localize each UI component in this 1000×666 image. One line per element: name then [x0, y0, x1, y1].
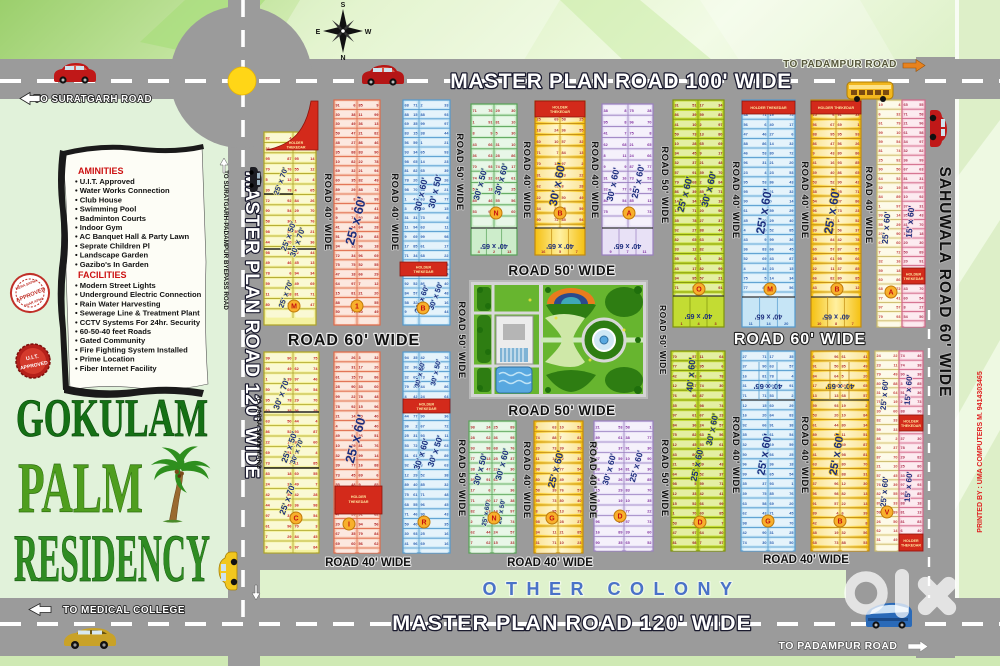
svg-text:32: 32: [579, 140, 583, 144]
svg-text:HOLDER: HOLDER: [903, 419, 919, 423]
svg-text:FACILITIES: FACILITIES: [78, 270, 127, 280]
svg-text:50: 50: [919, 315, 923, 319]
svg-text:96: 96: [743, 463, 747, 467]
svg-text:ROAD 50' WIDE: ROAD 50' WIDE: [508, 263, 615, 278]
svg-text:37: 37: [692, 161, 696, 165]
svg-text:92: 92: [919, 195, 923, 199]
svg-text:68: 68: [622, 143, 626, 147]
svg-text:48: 48: [444, 291, 448, 295]
svg-text:78: 78: [719, 374, 723, 378]
svg-text:10: 10: [626, 499, 630, 503]
svg-text:87: 87: [877, 455, 881, 459]
svg-text:12: 12: [405, 473, 409, 477]
svg-text:80: 80: [718, 132, 722, 136]
svg-text:35: 35: [647, 499, 651, 503]
svg-text:95: 95: [692, 276, 696, 280]
svg-text:89: 89: [405, 483, 409, 487]
svg-text:95: 95: [266, 157, 270, 161]
svg-text:59: 59: [405, 522, 409, 526]
svg-text:89: 89: [444, 454, 448, 458]
svg-text:65: 65: [692, 238, 696, 242]
svg-text:HOLDER: HOLDER: [416, 265, 432, 269]
svg-text:86: 86: [855, 152, 859, 156]
svg-text:71: 71: [904, 112, 908, 116]
svg-text:TO PADAMPUR ROAD: TO PADAMPUR ROAD: [778, 640, 897, 652]
svg-text:59: 59: [879, 140, 883, 144]
svg-text:28: 28: [313, 493, 317, 497]
svg-text:45: 45: [789, 248, 793, 252]
svg-text:17: 17: [770, 355, 774, 359]
svg-text:39: 39: [700, 171, 704, 175]
svg-text:96: 96: [413, 542, 417, 546]
svg-text:• Underground Electric Connect: • Underground Electric Connection: [75, 290, 202, 299]
svg-text:66: 66: [647, 154, 651, 158]
svg-text:87: 87: [313, 430, 317, 434]
svg-text:36: 36: [494, 436, 498, 440]
svg-text:80: 80: [838, 276, 842, 280]
svg-text:89: 89: [813, 512, 817, 516]
svg-text:22: 22: [647, 510, 651, 514]
svg-text:63: 63: [266, 420, 270, 424]
svg-text:77: 77: [471, 457, 475, 461]
svg-text:19: 19: [618, 499, 622, 503]
svg-text:96: 96: [596, 520, 600, 524]
svg-text:31: 31: [351, 366, 355, 370]
svg-text:52: 52: [577, 426, 581, 430]
svg-text:71: 71: [692, 209, 696, 213]
svg-text:20: 20: [789, 502, 793, 506]
svg-text:82: 82: [675, 238, 679, 242]
svg-text:37: 37: [718, 219, 722, 223]
svg-text:53: 53: [863, 541, 867, 545]
svg-text:28: 28: [579, 185, 583, 189]
svg-text:V: V: [885, 510, 890, 517]
svg-text:6: 6: [289, 546, 291, 550]
svg-text:78: 78: [336, 405, 340, 409]
svg-text:80: 80: [336, 366, 340, 370]
svg-text:23: 23: [444, 160, 448, 164]
svg-text:61: 61: [879, 122, 883, 126]
svg-text:75: 75: [604, 210, 608, 214]
svg-text:51: 51: [374, 434, 378, 438]
svg-text:46: 46: [488, 199, 492, 203]
svg-text:63: 63: [444, 444, 448, 448]
svg-text:49: 49: [295, 282, 299, 286]
svg-text:81: 81: [577, 436, 581, 440]
svg-text:97: 97: [692, 531, 696, 535]
svg-text:39: 39: [444, 169, 448, 173]
svg-text:59: 59: [877, 511, 881, 515]
svg-text:ROAD 40' WIDE: ROAD 40' WIDE: [507, 557, 593, 569]
svg-text:75: 75: [630, 109, 634, 113]
svg-text:32: 32: [405, 375, 409, 379]
svg-text:35: 35: [673, 404, 677, 408]
svg-text:9: 9: [536, 426, 538, 430]
svg-text:61: 61: [692, 414, 696, 418]
svg-text:6: 6: [376, 473, 378, 477]
svg-text:55: 55: [413, 503, 417, 507]
svg-text:87: 87: [287, 157, 291, 161]
svg-text:ROAD 40' WIDE: ROAD 40' WIDE: [730, 161, 741, 238]
svg-text:48: 48: [813, 531, 817, 535]
svg-text:50: 50: [896, 168, 900, 172]
svg-text:72: 72: [336, 254, 340, 258]
svg-text:81: 81: [405, 169, 409, 173]
svg-text:16: 16: [743, 374, 747, 378]
svg-text:55: 55: [295, 168, 299, 172]
svg-text:98: 98: [692, 541, 696, 545]
svg-text:25: 25: [879, 158, 883, 162]
svg-text:1: 1: [649, 426, 651, 430]
svg-text:75: 75: [813, 238, 817, 242]
svg-text:29: 29: [901, 455, 905, 459]
svg-text:99: 99: [374, 197, 378, 201]
svg-text:A: A: [888, 290, 893, 297]
svg-text:42: 42: [743, 531, 747, 535]
svg-text:63: 63: [421, 226, 425, 230]
svg-text:7: 7: [721, 521, 723, 525]
svg-text:15: 15: [359, 405, 363, 409]
svg-text:82: 82: [830, 276, 834, 280]
svg-text:16: 16: [622, 176, 626, 180]
svg-text:70: 70: [673, 355, 677, 359]
svg-text:68: 68: [421, 254, 425, 258]
svg-text:85: 85: [855, 276, 859, 280]
svg-text:90: 90: [838, 180, 842, 184]
svg-text:95: 95: [744, 180, 748, 184]
svg-text:88: 88: [405, 113, 409, 117]
svg-text:90: 90: [374, 150, 378, 154]
svg-text:73: 73: [917, 400, 921, 404]
svg-text:56: 56: [838, 228, 842, 232]
svg-text:98: 98: [266, 367, 270, 371]
svg-text:2: 2: [700, 123, 702, 127]
svg-text:65: 65: [700, 142, 704, 146]
svg-text:96: 96: [359, 244, 363, 248]
svg-text:69: 69: [770, 502, 774, 506]
svg-text:61: 61: [719, 443, 723, 447]
svg-text:69: 69: [762, 257, 766, 261]
svg-text:71: 71: [473, 109, 477, 113]
svg-text:31: 31: [536, 541, 540, 545]
svg-text:18: 18: [917, 501, 921, 505]
svg-text:17: 17: [359, 366, 363, 370]
svg-text:39: 39: [626, 531, 630, 535]
svg-text:10: 10: [511, 143, 515, 147]
svg-text:89: 89: [919, 250, 923, 254]
svg-text:19: 19: [893, 400, 897, 404]
svg-text:93: 93: [471, 447, 475, 451]
svg-text:13: 13: [579, 151, 583, 155]
svg-text:21: 21: [336, 415, 340, 419]
svg-text:22: 22: [537, 196, 541, 200]
svg-text:61: 61: [842, 355, 846, 359]
svg-text:61: 61: [413, 493, 417, 497]
svg-text:11: 11: [359, 113, 363, 117]
svg-text:15: 15: [494, 541, 498, 545]
svg-text:18: 18: [789, 463, 793, 467]
svg-text:C: C: [293, 516, 298, 523]
svg-text:36: 36: [789, 238, 793, 242]
svg-text:70: 70: [919, 287, 923, 291]
svg-text:22: 22: [813, 267, 817, 271]
svg-text:99: 99: [421, 122, 425, 126]
svg-text:62: 62: [537, 185, 541, 189]
svg-text:78: 78: [266, 272, 270, 276]
svg-text:80: 80: [842, 423, 846, 427]
svg-text:40: 40: [577, 499, 581, 503]
svg-text:89: 89: [510, 426, 514, 430]
svg-text:40: 40: [374, 424, 378, 428]
svg-text:98: 98: [444, 235, 448, 239]
svg-text:9: 9: [813, 472, 815, 476]
svg-text:39: 39: [813, 171, 817, 175]
svg-text:50: 50: [834, 365, 838, 369]
svg-text:88: 88: [359, 188, 363, 192]
svg-text:69: 69: [336, 169, 340, 173]
svg-text:6: 6: [813, 355, 815, 359]
svg-text:13: 13: [700, 132, 704, 136]
svg-text:ROAD 60' WIDE: ROAD 60' WIDE: [288, 332, 420, 349]
svg-text:43: 43: [770, 257, 774, 261]
svg-text:29: 29: [789, 209, 793, 213]
svg-text:10: 10: [626, 457, 630, 461]
svg-text:45: 45: [295, 261, 299, 265]
svg-text:29: 29: [287, 535, 291, 539]
svg-text:46: 46: [287, 261, 291, 265]
svg-text:59: 59: [266, 282, 270, 286]
svg-text:8: 8: [446, 216, 448, 220]
svg-text:9: 9: [764, 238, 766, 242]
svg-text:38: 38: [917, 363, 921, 367]
svg-text:63: 63: [743, 502, 747, 506]
svg-text:20: 20: [784, 322, 788, 326]
svg-text:45: 45: [351, 473, 355, 477]
svg-text:59: 59: [789, 443, 793, 447]
svg-text:12: 12: [673, 492, 677, 496]
svg-text:16: 16: [743, 414, 747, 418]
svg-text:71: 71: [762, 355, 766, 359]
svg-text:63: 63: [919, 168, 923, 172]
svg-text:42: 42: [700, 492, 704, 496]
svg-text:B: B: [420, 306, 425, 313]
svg-text:69: 69: [718, 142, 722, 146]
svg-text:43: 43: [919, 214, 923, 218]
svg-text:ROAD 50' WIDE: ROAD 50' WIDE: [456, 301, 467, 378]
svg-text:76: 76: [560, 489, 564, 493]
svg-text:71: 71: [310, 292, 314, 296]
svg-text:99: 99: [879, 131, 883, 135]
svg-text:90: 90: [879, 168, 883, 172]
svg-text:3: 3: [295, 357, 297, 361]
svg-text:90: 90: [266, 209, 270, 213]
svg-text:36: 36: [444, 415, 448, 419]
svg-text:85: 85: [413, 244, 417, 248]
svg-text:18: 18: [537, 129, 541, 133]
svg-text:55: 55: [675, 257, 679, 261]
svg-text:13: 13: [507, 250, 511, 254]
svg-text:16: 16: [830, 161, 834, 165]
svg-text:41: 41: [405, 542, 409, 546]
svg-text:89: 89: [336, 188, 340, 192]
svg-text:95: 95: [838, 257, 842, 261]
svg-text:43: 43: [719, 463, 723, 467]
svg-text:88: 88: [842, 541, 846, 545]
svg-text:10: 10: [904, 195, 908, 199]
svg-text:43: 43: [473, 143, 477, 147]
svg-text:2: 2: [581, 162, 583, 166]
svg-text:72: 72: [444, 424, 448, 428]
svg-text:20: 20: [577, 447, 581, 451]
svg-text:8: 8: [624, 120, 626, 124]
svg-text:69: 69: [310, 282, 314, 286]
svg-text:50: 50: [904, 250, 908, 254]
svg-text:75: 75: [630, 132, 634, 136]
svg-text:39: 39: [560, 447, 564, 451]
svg-text:5: 5: [764, 276, 766, 280]
svg-text:59: 59: [579, 207, 583, 211]
svg-text:67: 67: [700, 414, 704, 418]
svg-text:3: 3: [315, 525, 317, 529]
svg-text:HOLDER: HOLDER: [351, 495, 367, 499]
svg-text:• 60-50-40 feet Roads: • 60-50-40 feet Roads: [75, 327, 151, 336]
svg-text:82: 82: [842, 492, 846, 496]
svg-text:59: 59: [700, 482, 704, 486]
svg-text:38: 38: [813, 190, 817, 194]
svg-text:30: 30: [511, 109, 515, 113]
svg-text:6: 6: [694, 404, 696, 408]
svg-text:70: 70: [537, 162, 541, 166]
svg-text:TO MEDICAL COLLEGE: TO MEDICAL COLLEGE: [63, 605, 185, 616]
svg-text:10: 10: [896, 131, 900, 135]
svg-text:3: 3: [721, 394, 723, 398]
svg-text:78: 78: [287, 399, 291, 403]
svg-text:• Club House: • Club House: [75, 195, 122, 204]
svg-text:70: 70: [313, 399, 317, 403]
svg-text:87: 87: [700, 394, 704, 398]
svg-text:58: 58: [536, 489, 540, 493]
svg-text:57: 57: [562, 140, 566, 144]
svg-text:81: 81: [351, 291, 355, 295]
svg-text:85: 85: [842, 365, 846, 369]
svg-text:18: 18: [287, 472, 291, 476]
svg-text:6: 6: [694, 257, 696, 261]
svg-text:90: 90: [744, 200, 748, 204]
svg-text:31: 31: [743, 384, 747, 388]
svg-text:90: 90: [287, 357, 291, 361]
svg-text:1: 1: [473, 120, 475, 124]
svg-text:30: 30: [266, 188, 270, 192]
svg-text:82: 82: [374, 132, 378, 136]
svg-text:57: 57: [719, 541, 723, 545]
svg-text:59: 59: [675, 132, 679, 136]
svg-text:17: 17: [471, 489, 475, 493]
svg-text:S: S: [341, 2, 346, 9]
svg-text:10: 10: [336, 444, 340, 448]
svg-text:TO PADAMPUR ROAD: TO PADAMPUR ROAD: [783, 59, 897, 70]
svg-text:G: G: [549, 516, 555, 523]
svg-text:36: 36: [904, 158, 908, 162]
svg-text:8: 8: [624, 109, 626, 113]
svg-text:HOLDER: HOLDER: [552, 105, 568, 109]
svg-text:86: 86: [813, 142, 817, 146]
svg-text:32: 32: [879, 186, 883, 190]
svg-text:92: 92: [675, 228, 679, 232]
svg-text:27: 27: [919, 306, 923, 310]
svg-text:88: 88: [421, 113, 425, 117]
svg-text:53: 53: [813, 180, 817, 184]
svg-text:70: 70: [789, 521, 793, 525]
svg-text:28: 28: [560, 520, 564, 524]
svg-text:20: 20: [863, 374, 867, 378]
svg-text:85: 85: [770, 492, 774, 496]
svg-text:N: N: [491, 516, 496, 523]
svg-text:58: 58: [919, 112, 923, 116]
svg-text:10: 10: [893, 465, 897, 469]
svg-text:ROAD 40' WIDE: ROAD 40' WIDE: [521, 141, 532, 218]
svg-text:15: 15: [673, 502, 677, 506]
svg-text:99: 99: [336, 395, 340, 399]
svg-text:40' x 65': 40' x 65': [685, 312, 713, 321]
svg-text:9: 9: [405, 235, 407, 239]
svg-text:61: 61: [336, 375, 340, 379]
svg-text:17: 17: [700, 104, 704, 108]
svg-text:79: 79: [675, 180, 679, 184]
svg-text:35: 35: [413, 122, 417, 126]
svg-text:71: 71: [413, 103, 417, 107]
svg-text:• Gated Community: • Gated Community: [75, 336, 146, 345]
svg-text:20: 20: [834, 414, 838, 418]
svg-text:83: 83: [762, 248, 766, 252]
svg-text:70: 70: [863, 463, 867, 467]
svg-text:98: 98: [834, 492, 838, 496]
svg-text:73: 73: [647, 210, 651, 214]
svg-text:80: 80: [842, 463, 846, 467]
svg-text:55: 55: [536, 499, 540, 503]
svg-text:71: 71: [421, 493, 425, 497]
svg-text:HOLDER THEKEDAR: HOLDER THEKEDAR: [750, 106, 787, 110]
svg-text:89: 89: [813, 433, 817, 437]
svg-text:57: 57: [675, 171, 679, 175]
svg-text:99: 99: [719, 502, 723, 506]
svg-text:13: 13: [863, 492, 867, 496]
svg-text:37: 37: [743, 365, 747, 369]
svg-text:9: 9: [609, 250, 611, 254]
svg-text:31: 31: [919, 204, 923, 208]
svg-text:75: 75: [405, 493, 409, 497]
svg-text:32: 32: [879, 260, 883, 264]
svg-text:32: 32: [896, 112, 900, 116]
svg-text:49: 49: [893, 373, 897, 377]
svg-text:ROAD 40' WIDE: ROAD 40' WIDE: [763, 554, 849, 566]
svg-text:8: 8: [649, 132, 651, 136]
svg-text:3: 3: [901, 382, 903, 386]
svg-text:97: 97: [444, 122, 448, 126]
svg-text:13: 13: [834, 394, 838, 398]
svg-text:37: 37: [762, 482, 766, 486]
svg-text:THEKEDAR: THEKEDAR: [550, 110, 570, 114]
svg-text:20: 20: [374, 366, 378, 370]
svg-text:37: 37: [901, 437, 905, 441]
svg-text:11: 11: [642, 250, 646, 254]
svg-text:THEKEDAR: THEKEDAR: [414, 270, 434, 274]
svg-text:31: 31: [496, 143, 500, 147]
svg-text:22: 22: [266, 441, 270, 445]
svg-text:70: 70: [647, 489, 651, 493]
svg-text:66: 66: [762, 423, 766, 427]
svg-text:32: 32: [789, 190, 793, 194]
svg-text:11: 11: [749, 322, 753, 326]
